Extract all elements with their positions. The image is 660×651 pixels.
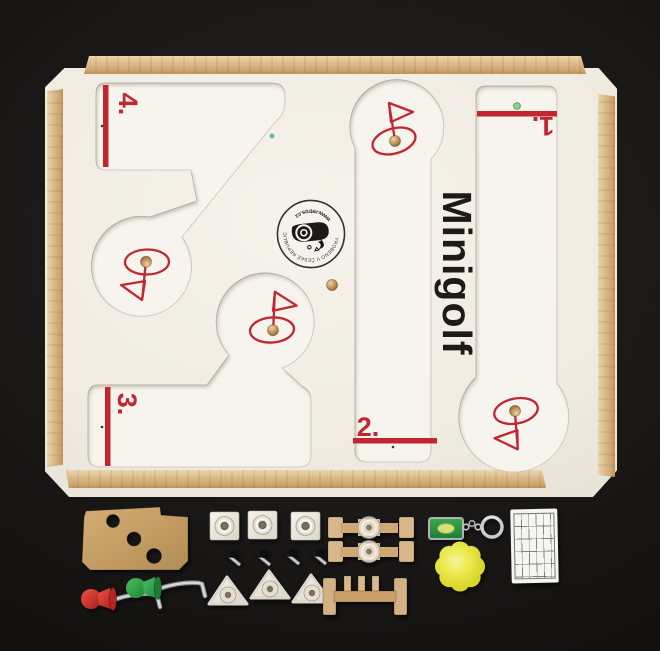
speck — [392, 446, 395, 449]
hole-1-label: 1. — [532, 111, 555, 141]
hole-3-label: 3. — [112, 393, 142, 416]
wooden-ball — [327, 280, 338, 291]
gate-obstacle — [323, 576, 407, 615]
speck — [101, 426, 104, 429]
square-bumper-tile — [248, 511, 277, 539]
score-card — [510, 509, 559, 584]
hole-2-label: 2. — [357, 412, 380, 442]
photo-scene: 4. 3. 2. 1. Minigolf — [0, 0, 660, 651]
square-bumper-tiles — [210, 511, 320, 540]
black-thumb-screw — [223, 545, 240, 565]
green-club — [126, 577, 205, 600]
maker-stamp: VYROBENO V ČESKÉ REPUBLICE www.retros.cz — [274, 197, 348, 271]
hole-2-ball — [390, 136, 401, 147]
hole-1-ball — [509, 405, 521, 417]
accessory-set — [81, 507, 502, 615]
course-tracks — [88, 80, 569, 472]
start-line-hole-3 — [105, 387, 111, 466]
mdf-target-board — [82, 507, 188, 570]
green-bead — [514, 103, 521, 110]
spinner-paddle — [328, 517, 414, 539]
triangle-bumper-tile — [209, 577, 247, 604]
black-thumb-screw — [309, 544, 326, 564]
speck — [101, 125, 104, 128]
foam-flower-ball — [435, 542, 485, 592]
hole-4-label: 4. — [113, 93, 143, 116]
triangle-bumper-tile — [251, 571, 289, 598]
black-thumb-screw — [253, 545, 270, 565]
teal-speck — [270, 134, 275, 139]
spinner-paddle — [328, 541, 414, 563]
level-keychain — [429, 517, 502, 539]
start-line-hole-4 — [103, 85, 109, 167]
square-bumper-tile — [210, 512, 239, 540]
black-thumb-screw — [282, 544, 299, 564]
board-graphics: 4. 3. 2. 1. Minigolf — [0, 0, 660, 651]
score-card-grid — [513, 513, 555, 580]
triangle-bumper-tiles — [209, 571, 331, 604]
square-bumper-tile — [291, 512, 320, 540]
black-thumb-screws — [223, 544, 326, 565]
board-title: Minigolf — [434, 190, 480, 355]
